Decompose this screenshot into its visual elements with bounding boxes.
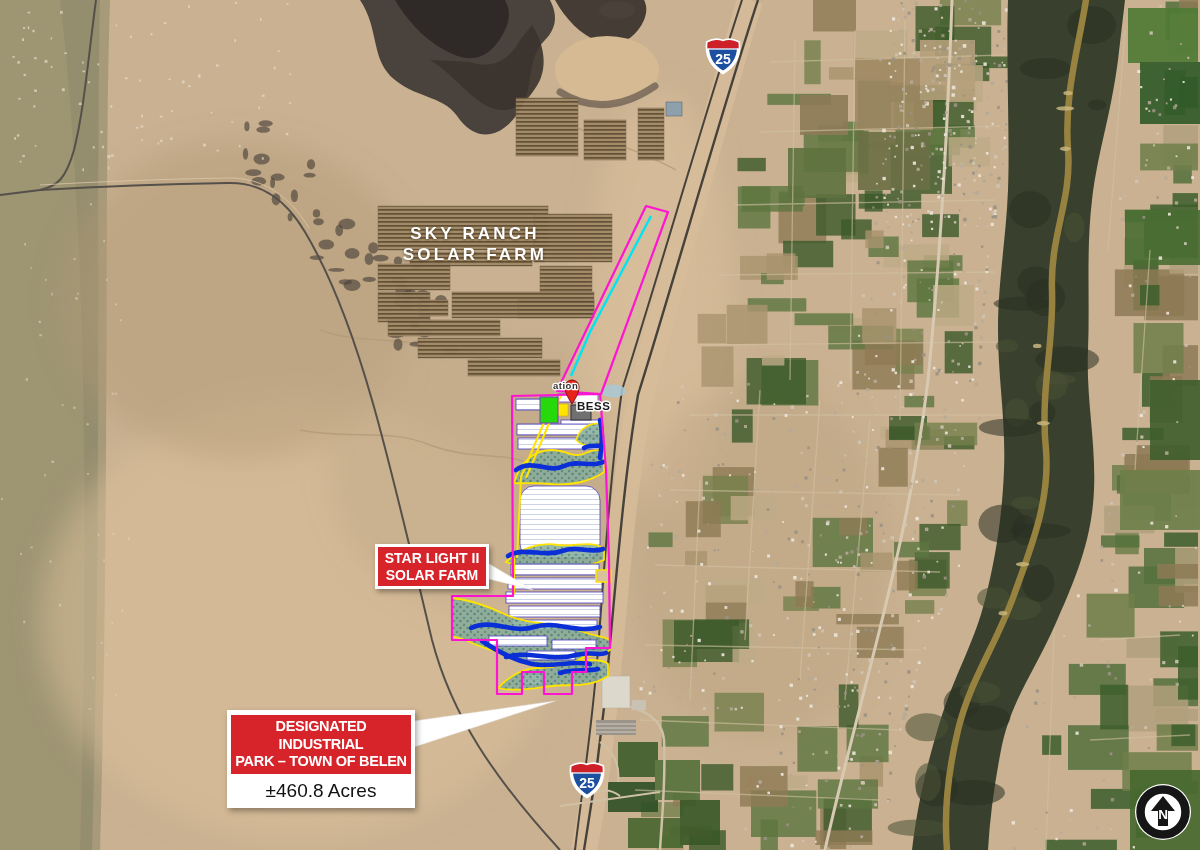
north-letter: N — [1158, 807, 1168, 822]
substation-label: ation — [553, 380, 578, 391]
star-light-line2: SOLAR FARM — [380, 567, 484, 584]
sky-ranch-label: SKY RANCH SOLAR FARM — [395, 223, 555, 265]
star-light-line1: STAR LIGHT II — [380, 550, 484, 567]
industrial-park-header: DESIGNATED INDUSTRIAL PARK – TOWN OF BEL… — [231, 715, 411, 774]
industrial-park-callout: DESIGNATED INDUSTRIAL PARK – TOWN OF BEL… — [227, 710, 415, 808]
industrial-park-line1: DESIGNATED INDUSTRIAL — [232, 718, 410, 753]
substation-building — [666, 102, 682, 116]
aerial-site-map: ation BESS 25 25 N SKY RANCH SOLAR FARM … — [0, 0, 1200, 850]
star-light-callout: STAR LIGHT II SOLAR FARM — [375, 544, 489, 589]
bess-label: BESS — [577, 400, 610, 412]
acreage-label: ±460.8 Acres — [231, 774, 411, 804]
industrial-park-line2: PARK – TOWN OF BELEN — [232, 753, 410, 771]
north-arrow-icon: N — [1135, 784, 1191, 840]
shield-number: 25 — [579, 775, 595, 791]
sky-ranch-line2: SOLAR FARM — [395, 244, 555, 265]
satellite-imagery: ation BESS 25 25 N — [0, 0, 1200, 850]
substation-parcel — [540, 397, 558, 423]
shield-number: 25 — [715, 51, 731, 67]
sky-ranch-line1: SKY RANCH — [395, 223, 555, 244]
